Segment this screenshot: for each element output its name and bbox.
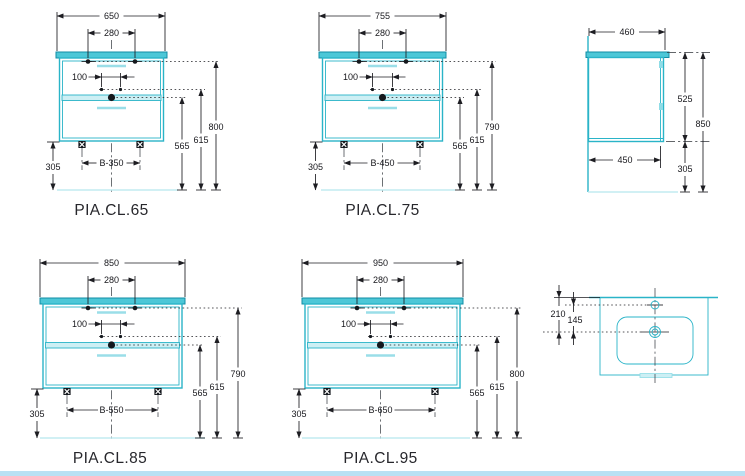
adjustable-foot [136,141,143,148]
dim-label: 790 [230,369,245,379]
dim-drain-height: 565 [174,98,189,191]
dim-label: 950 [373,258,388,268]
dim-top-height: 800 [509,308,524,438]
drain-mark [377,341,384,348]
dim-label: 615 [469,135,484,145]
dim-label: 305 [308,162,323,172]
dim-floor-clearance: 305 [29,389,44,438]
dim-label: 615 [193,135,208,145]
dim-label: 305 [677,164,692,174]
dim-label: 565 [192,388,207,398]
drawer-slide-mark [659,61,663,68]
adjustable-foot [63,388,70,395]
model-label: PIA.CL.95 [343,450,417,467]
dim-label: 280 [104,28,119,38]
dim-siphon-height: 615 [469,90,484,191]
dim-back-to-drain: 210 [550,285,565,345]
spec-sheet: 650 280 100 B-350 305 [0,0,745,476]
countertop-side [586,52,669,58]
countertop [40,298,185,304]
dim-label: 145 [567,315,582,325]
dim-floor-clearance: 305 [45,142,60,190]
dim-label: 210 [550,309,565,319]
drain-mark [108,341,115,348]
footer-bar [0,471,745,476]
dim-floor-clearance: 305 [677,142,692,193]
dim-label: B-350 [99,158,123,168]
drawer-slide-mark [659,103,663,110]
adjustable-foot [154,388,161,395]
dim-depth-bottom: 450 [589,146,661,168]
dim-label: 565 [469,388,484,398]
adjustable-foot [78,141,85,148]
dim-label: 450 [617,155,632,165]
dim-feet-spacing: B-550 [67,405,158,415]
dim-label: 755 [375,11,390,21]
countertop [319,52,446,58]
dim-label: 850 [104,258,119,268]
dim-label: 100 [72,72,87,82]
dim-faucet-to-drain: 145 [567,292,582,345]
front-view-pia-cl-85: 850 280 100 B-550 305 [29,258,245,467]
dim-top-height: 790 [230,308,245,438]
dim-label: 305 [291,409,306,419]
dim-label: 800 [208,122,223,132]
dim-label: 790 [484,122,499,132]
dim-drain-height: 565 [192,345,207,438]
countertop [56,52,167,58]
dim-label: 800 [509,369,524,379]
dim-label: 280 [104,275,119,285]
dim-label: 305 [45,162,60,172]
dim-label: 650 [104,11,119,21]
dim-top-height: 790 [484,62,499,191]
dim-drain-height: 565 [452,98,467,191]
dim-feet-spacing: B-650 [327,405,435,415]
dim-label: 100 [343,72,358,82]
dim-label: 100 [341,319,356,329]
dim-siphon-height: 615 [193,90,208,191]
dim-depth-top: 460 [589,27,665,50]
dim-total-height: 850 [695,53,710,193]
dim-label: 565 [174,141,189,151]
dim-label: 565 [452,141,467,151]
model-label: PIA.CL.65 [74,202,148,219]
dim-floor-clearance: 305 [308,142,323,190]
dim-label: 305 [29,409,44,419]
dim-label: 615 [489,382,504,392]
dim-label: 850 [695,119,710,129]
model-label: PIA.CL.75 [345,202,419,219]
dim-drain-height: 565 [469,345,484,438]
adjustable-foot [431,388,438,395]
dim-floor-clearance: 305 [291,389,306,438]
dim-siphon-height: 615 [489,337,504,439]
model-label: PIA.CL.85 [73,450,147,467]
dim-label: B-550 [99,405,123,415]
dim-label: B-450 [370,158,394,168]
side-view: 460 450 525 305 850 [586,27,711,192]
dim-label: B-650 [368,405,392,415]
technical-drawing: 650 280 100 B-350 305 [0,0,745,476]
dim-feet-spacing: B-350 [82,158,140,168]
drain-mark [108,94,115,101]
adjustable-foot [323,388,330,395]
countertop [302,298,463,304]
dim-label: 460 [619,27,634,37]
top-view: 210 145 [543,285,718,384]
dim-body-height: 525 [677,53,692,142]
cabinet-body-side [589,58,664,142]
front-handle-plan [640,374,672,378]
front-view-pia-cl-95: 950 280 100 B-650 305 [291,258,524,467]
dim-label: 525 [677,94,692,104]
dim-siphon-height: 615 [209,337,224,439]
front-view-pia-cl-75: 755 280 100 B-450 305 [308,11,500,219]
adjustable-foot [340,141,347,148]
dim-label: 100 [72,319,87,329]
adjustable-foot [416,141,423,148]
dim-label: 615 [209,382,224,392]
dim-label: 280 [375,28,390,38]
dim-feet-spacing: B-450 [344,158,420,168]
drain-mark [379,94,386,101]
front-view-pia-cl-65: 650 280 100 B-350 305 [45,11,223,219]
dim-label: 280 [373,275,388,285]
dim-top-height: 800 [208,62,223,191]
